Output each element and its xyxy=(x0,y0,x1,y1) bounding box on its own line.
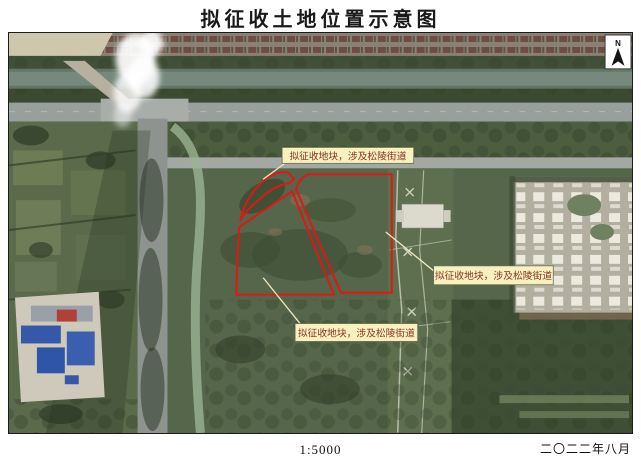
parcel-label-south-text: 拟征收地块，涉及松陵街道 xyxy=(298,326,415,339)
page-title: 拟征收土地位置示意图 xyxy=(0,3,641,32)
office-building xyxy=(396,204,451,228)
land-acquisition-map-page: 拟征收土地位置示意图 xyxy=(0,0,641,461)
map-date: 二〇二二年八月 xyxy=(540,440,631,457)
satellite-map-canvas: 拟征收地块，涉及松陵街道 拟征收地块，涉及松陵街道 拟征收地块，涉及松陵街道 N xyxy=(9,33,632,433)
parcel-label-south: 拟征收地块，涉及松陵街道 xyxy=(295,324,418,342)
north-arrow: N xyxy=(605,35,631,69)
industrial-compound xyxy=(15,292,105,402)
parcel-label-north-text: 拟征收地块，涉及松陵街道 xyxy=(289,149,406,162)
forest-southeast xyxy=(452,300,632,433)
north-arrow-label: N xyxy=(615,39,621,48)
parcel-label-north: 拟征收地块，涉及松陵街道 xyxy=(282,147,414,163)
parcel-label-east: 拟征收地块，涉及松陵街道 xyxy=(434,266,554,285)
satellite-map: 拟征收地块，涉及松陵街道 拟征收地块，涉及松陵街道 拟征收地块，涉及松陵街道 N xyxy=(8,32,633,434)
parcel-label-east-text: 拟征收地块，涉及松陵街道 xyxy=(435,269,552,282)
villa-compound xyxy=(509,176,632,312)
